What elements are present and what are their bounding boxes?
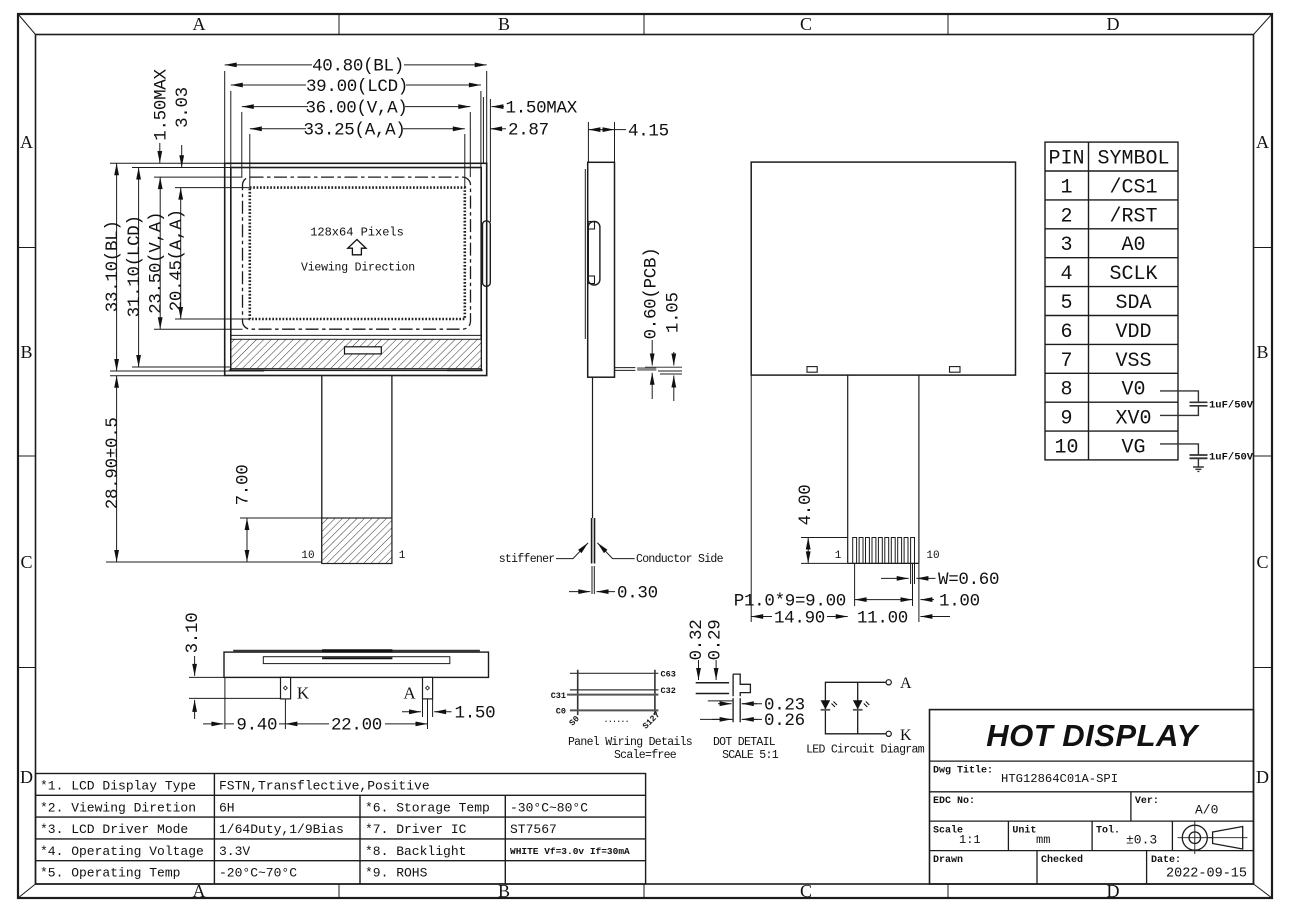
svg-text:D: D: [1256, 767, 1269, 787]
svg-text:0.60(PCB): 0.60(PCB): [642, 248, 662, 340]
svg-text:C63: C63: [661, 670, 676, 680]
svg-text:HOT DISPLAY: HOT DISPLAY: [986, 718, 1200, 753]
svg-text:*2. Viewing Diretion: *2. Viewing Diretion: [40, 800, 196, 815]
svg-text:*7. Driver IC: *7. Driver IC: [365, 822, 467, 837]
svg-text:Date:: Date:: [1151, 855, 1181, 866]
svg-text:9: 9: [1060, 408, 1072, 431]
svg-text:A0: A0: [1121, 234, 1145, 257]
svg-text:*4. Operating Voltage: *4. Operating Voltage: [40, 844, 204, 859]
svg-text:DOT DETAIL: DOT DETAIL: [713, 736, 776, 749]
svg-text:V0: V0: [1121, 379, 1145, 402]
svg-text:28.90±0.5: 28.90±0.5: [103, 417, 123, 509]
svg-text:Conductor Side: Conductor Side: [636, 553, 724, 566]
svg-text:Drawn: Drawn: [933, 855, 963, 866]
svg-text:20.45(A,A): 20.45(A,A): [167, 209, 187, 311]
svg-text:C31: C31: [551, 691, 566, 701]
svg-text:K: K: [297, 684, 310, 703]
svg-text:Dwg Title:: Dwg Title:: [933, 765, 993, 777]
svg-text:LED Circuit Diagram: LED Circuit Diagram: [806, 744, 925, 757]
svg-text:4.00: 4.00: [796, 485, 816, 526]
svg-text:FSTN,Transflective,Positive: FSTN,Transflective,Positive: [219, 779, 430, 794]
svg-text:ST7567: ST7567: [510, 822, 557, 837]
svg-text:/RST: /RST: [1109, 205, 1157, 228]
svg-text:10: 10: [926, 550, 939, 562]
svg-text:B: B: [20, 342, 32, 362]
svg-text:Unit: Unit: [1012, 824, 1036, 836]
svg-text:4.15: 4.15: [628, 121, 669, 141]
svg-text:3.10: 3.10: [183, 613, 203, 654]
svg-text:C: C: [1256, 552, 1268, 572]
svg-text:0.32: 0.32: [687, 620, 707, 661]
svg-text:2: 2: [1060, 205, 1072, 228]
svg-text:Scale=free: Scale=free: [614, 749, 677, 762]
svg-text:*5. Operating Temp: *5. Operating Temp: [40, 866, 180, 881]
svg-text:VDD: VDD: [1115, 321, 1151, 344]
svg-text:D: D: [1107, 14, 1120, 34]
svg-text:*9. ROHS: *9. ROHS: [365, 866, 428, 881]
svg-text:VG: VG: [1121, 437, 1145, 460]
svg-text:C0: C0: [556, 707, 566, 717]
svg-text:PIN: PIN: [1048, 148, 1084, 171]
svg-text:3.03: 3.03: [173, 87, 193, 128]
svg-text:2022-09-15: 2022-09-15: [1166, 867, 1247, 882]
svg-text:22.00: 22.00: [331, 716, 382, 736]
svg-text:5: 5: [1060, 292, 1072, 315]
svg-text:8: 8: [1060, 379, 1072, 402]
svg-text:9.40: 9.40: [236, 716, 277, 736]
svg-text:/CS1: /CS1: [1109, 176, 1157, 199]
svg-text:4: 4: [1060, 263, 1072, 286]
svg-text:C: C: [20, 552, 32, 572]
svg-text:1uF/50V: 1uF/50V: [1209, 451, 1254, 463]
svg-text:33.10(BL): 33.10(BL): [103, 220, 123, 312]
svg-text:Tol.: Tol.: [1096, 824, 1120, 836]
svg-text:-20°C~70°C: -20°C~70°C: [219, 866, 297, 881]
svg-text:1.50MAX: 1.50MAX: [506, 98, 578, 118]
svg-text:39.00(LCD): 39.00(LCD): [306, 77, 408, 97]
svg-text:1: 1: [835, 550, 842, 562]
svg-text:*8. Backlight: *8. Backlight: [365, 844, 466, 859]
svg-text:*6. Storage Temp: *6. Storage Temp: [365, 800, 490, 815]
svg-text:6: 6: [1060, 321, 1072, 344]
svg-text:128x64 Pixels: 128x64 Pixels: [310, 226, 404, 240]
svg-text:*3. LCD Driver Mode: *3. LCD Driver Mode: [40, 822, 188, 837]
svg-text:mm: mm: [1036, 833, 1050, 847]
svg-text:WHITE Vf=3.0v If=30mA: WHITE Vf=3.0v If=30mA: [510, 846, 630, 857]
svg-text:3.3V: 3.3V: [219, 844, 250, 859]
svg-text:SCALE 5:1: SCALE 5:1: [722, 749, 779, 762]
svg-text:......: ......: [603, 715, 628, 725]
svg-text:C32: C32: [661, 686, 676, 696]
svg-text:D: D: [20, 767, 33, 787]
svg-text:-30°C~80°C: -30°C~80°C: [510, 800, 588, 815]
svg-text:1: 1: [399, 550, 406, 562]
svg-text:A/0: A/0: [1195, 803, 1218, 818]
svg-text:Ver:: Ver:: [1135, 796, 1159, 807]
svg-text:0.26: 0.26: [764, 711, 805, 731]
svg-text:Panel Wiring Details: Panel Wiring Details: [568, 736, 692, 749]
svg-text:2.87: 2.87: [508, 121, 549, 141]
svg-text:14.90: 14.90: [774, 608, 825, 628]
svg-text:1: 1: [1060, 176, 1072, 199]
svg-text:SYMBOL: SYMBOL: [1097, 148, 1169, 171]
svg-text:1.00: 1.00: [939, 591, 980, 611]
svg-text:1:1: 1:1: [959, 833, 981, 847]
svg-text:EDC No:: EDC No:: [933, 796, 975, 807]
svg-text:W=0.60: W=0.60: [938, 570, 999, 590]
svg-text:VSS: VSS: [1115, 350, 1151, 373]
svg-text:33.25(A,A): 33.25(A,A): [303, 121, 405, 141]
svg-text:B: B: [1256, 342, 1268, 362]
svg-text:B: B: [498, 14, 510, 34]
svg-text:40.80(BL): 40.80(BL): [312, 57, 404, 77]
svg-text:0.29: 0.29: [706, 620, 726, 661]
svg-text:1uF/50V: 1uF/50V: [1209, 400, 1254, 412]
svg-text:stiffener: stiffener: [499, 553, 555, 566]
svg-text:1.05: 1.05: [663, 292, 683, 333]
svg-text:SDA: SDA: [1115, 292, 1151, 315]
svg-text:23.50(V,A): 23.50(V,A): [147, 212, 167, 314]
svg-text:A: A: [20, 132, 33, 152]
svg-text:31.10(LCD): 31.10(LCD): [125, 215, 145, 317]
svg-text:1/64Duty,1/9Bias: 1/64Duty,1/9Bias: [219, 822, 344, 837]
svg-text:A: A: [403, 684, 416, 703]
svg-text:10: 10: [1054, 437, 1078, 460]
svg-text:36.00(V,A): 36.00(V,A): [305, 98, 407, 118]
svg-text:SCLK: SCLK: [1109, 263, 1157, 286]
svg-text:1.50MAX: 1.50MAX: [151, 69, 171, 141]
svg-text:A: A: [193, 14, 206, 34]
svg-text:HTG12864C01A-SPI: HTG12864C01A-SPI: [1001, 772, 1118, 786]
svg-text:C: C: [800, 14, 812, 34]
svg-text:*1. LCD Display Type: *1. LCD Display Type: [40, 779, 196, 794]
svg-text:0.30: 0.30: [617, 583, 658, 603]
svg-text:A: A: [1256, 132, 1269, 152]
svg-text:A: A: [900, 675, 912, 692]
svg-text:Viewing Direction: Viewing Direction: [301, 262, 415, 275]
svg-text:7.00: 7.00: [234, 465, 254, 506]
svg-text:7: 7: [1060, 350, 1072, 373]
svg-text:K: K: [900, 727, 912, 744]
svg-text:11.00: 11.00: [857, 608, 908, 628]
svg-text:Checked: Checked: [1041, 854, 1083, 866]
svg-text:1.50: 1.50: [455, 704, 496, 724]
svg-text:6H: 6H: [219, 800, 235, 815]
svg-text:XV0: XV0: [1115, 408, 1151, 431]
svg-text:±0.3: ±0.3: [1126, 833, 1157, 848]
svg-text:3: 3: [1060, 234, 1072, 257]
svg-text:10: 10: [301, 550, 314, 562]
svg-text:C: C: [800, 881, 812, 901]
